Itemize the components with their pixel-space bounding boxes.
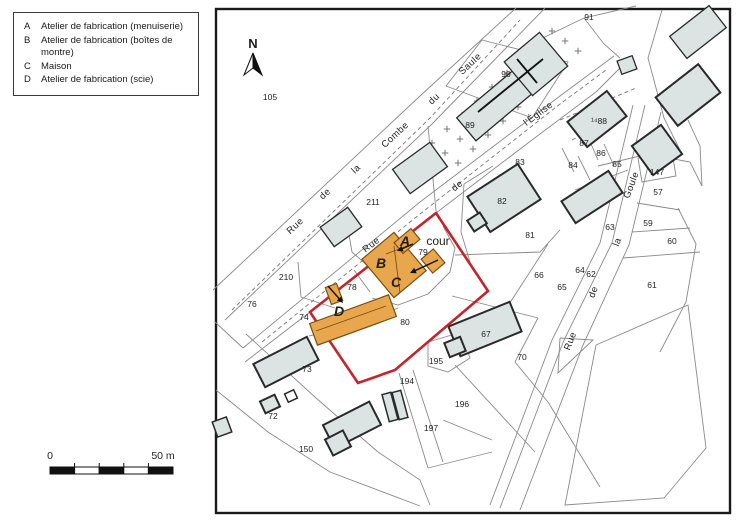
legend-item: B Atelier de fabrication (boîtes de mont… bbox=[24, 35, 192, 60]
building-letter: D bbox=[334, 303, 344, 319]
parcel-number: 210 bbox=[279, 272, 293, 282]
legend-key: D bbox=[24, 74, 41, 87]
legend-item: C Maison bbox=[24, 61, 192, 74]
scale-bar-segment bbox=[75, 467, 100, 474]
cour-label: cour bbox=[426, 234, 449, 248]
cadastral-map-page: 105919089¹⁴88878685841475783828166656463… bbox=[0, 0, 738, 522]
parcel-number: 150 bbox=[299, 444, 313, 454]
building-letter: B bbox=[376, 255, 386, 271]
legend-box: A Atelier de fabrication (menuiserie) B … bbox=[13, 12, 199, 96]
parcel-number: 72 bbox=[268, 411, 278, 421]
parcel-number: 57 bbox=[653, 187, 663, 197]
parcel-number: 87 bbox=[579, 138, 589, 148]
scale-bar-segment bbox=[99, 467, 124, 474]
parcel-number: 82 bbox=[497, 196, 507, 206]
parcel-number: 65 bbox=[557, 282, 567, 292]
building-letter: A bbox=[399, 233, 410, 249]
parcel-number: 147 bbox=[650, 167, 664, 177]
parcel-number: 73 bbox=[302, 364, 312, 374]
parcel-number: 81 bbox=[525, 230, 535, 240]
parcel-number: 61 bbox=[647, 280, 657, 290]
parcel-number: 89 bbox=[465, 120, 475, 130]
parcel-number: 63 bbox=[605, 222, 615, 232]
legend-label: Atelier de fabrication (scie) bbox=[41, 74, 192, 87]
legend-label: Atelier de fabrication (boîtes de montre… bbox=[41, 35, 192, 60]
parcel-number: 90 bbox=[501, 69, 511, 79]
parcel-number: 76 bbox=[247, 299, 257, 309]
scale-bar-segment bbox=[124, 467, 149, 474]
parcel-number: 64 bbox=[575, 265, 585, 275]
scale-bar-segment bbox=[50, 467, 75, 474]
parcel-number: 70 bbox=[517, 352, 527, 362]
parcel-number: 83 bbox=[515, 157, 525, 167]
map-frame bbox=[216, 9, 730, 513]
parcel-number: 84 bbox=[568, 160, 578, 170]
parcel-number: 59 bbox=[643, 218, 653, 228]
parcel-number: 91 bbox=[584, 12, 594, 22]
parcel-number: 66 bbox=[534, 270, 544, 280]
scale-bar: 050 m bbox=[47, 450, 175, 474]
parcel-number: 105 bbox=[263, 92, 277, 102]
parcel-number: 67 bbox=[481, 329, 491, 339]
parcel-number: 74 bbox=[299, 312, 309, 322]
legend-key: C bbox=[24, 61, 41, 74]
legend-item: A Atelier de fabrication (menuiserie) bbox=[24, 21, 192, 34]
legend-label: Maison bbox=[41, 61, 192, 74]
parcel-number: 86 bbox=[596, 148, 606, 158]
parcel-number: 78 bbox=[347, 282, 357, 292]
north-label: N bbox=[248, 36, 257, 51]
parcel-number: 62 bbox=[586, 269, 596, 279]
parcel-number: 197 bbox=[424, 423, 438, 433]
parcel-number: 211 bbox=[366, 197, 380, 207]
parcel-number: 194 bbox=[400, 376, 414, 386]
parcel-number: ¹⁴88 bbox=[591, 116, 607, 126]
building-letter: C bbox=[391, 274, 402, 290]
scale-end-label: 50 m bbox=[151, 450, 175, 462]
legend-label: Atelier de fabrication (menuiserie) bbox=[41, 21, 192, 34]
parcel-number: 195 bbox=[429, 356, 443, 366]
scale-start-label: 0 bbox=[47, 450, 53, 462]
parcel-number: 80 bbox=[400, 317, 410, 327]
parcel-number: 196 bbox=[455, 399, 469, 409]
parcel-number: 85 bbox=[612, 159, 622, 169]
scale-bar-segment bbox=[148, 467, 173, 474]
legend-key: A bbox=[24, 21, 41, 34]
legend-item: D Atelier de fabrication (scie) bbox=[24, 74, 192, 87]
parcel-number: 79 bbox=[418, 247, 428, 257]
parcel-number: 60 bbox=[667, 236, 677, 246]
legend-key: B bbox=[24, 35, 41, 48]
cour-label: cour bbox=[426, 234, 449, 248]
